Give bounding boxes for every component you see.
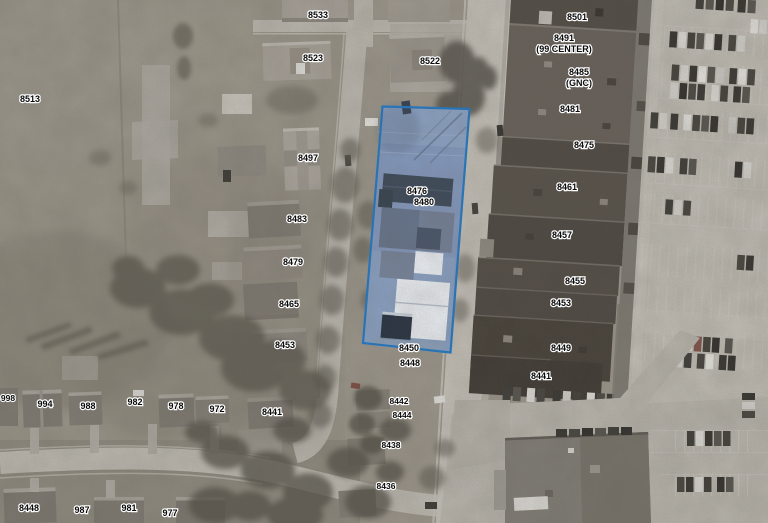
svg-text:8523: 8523 — [303, 53, 323, 63]
svg-text:998: 998 — [1, 393, 15, 403]
svg-text:8449: 8449 — [551, 343, 571, 353]
svg-text:(99 CENTER): (99 CENTER) — [536, 44, 592, 54]
svg-text:978: 978 — [168, 401, 183, 411]
svg-text:8491: 8491 — [554, 33, 574, 43]
svg-text:8441: 8441 — [262, 407, 282, 417]
svg-text:8481: 8481 — [560, 104, 580, 114]
svg-text:8436: 8436 — [377, 481, 396, 491]
svg-text:8453: 8453 — [551, 298, 571, 308]
svg-text:982: 982 — [127, 397, 142, 407]
svg-text:8483: 8483 — [287, 214, 307, 224]
svg-text:994: 994 — [37, 399, 52, 409]
svg-text:8453: 8453 — [275, 340, 295, 350]
svg-text:8465: 8465 — [279, 299, 299, 309]
svg-text:8501: 8501 — [567, 12, 587, 22]
svg-text:8476: 8476 — [407, 186, 427, 196]
svg-text:8480: 8480 — [414, 197, 434, 207]
svg-text:8475: 8475 — [574, 140, 594, 150]
svg-text:987: 987 — [74, 505, 89, 515]
svg-text:972: 972 — [209, 404, 224, 414]
svg-text:8513: 8513 — [20, 94, 40, 104]
svg-text:977: 977 — [162, 508, 177, 518]
svg-text:8450: 8450 — [399, 343, 419, 353]
svg-text:8442: 8442 — [390, 396, 409, 406]
svg-text:8533: 8533 — [308, 10, 328, 20]
svg-text:988: 988 — [80, 401, 95, 411]
svg-text:8441: 8441 — [531, 371, 551, 381]
svg-text:8497: 8497 — [298, 153, 318, 163]
svg-text:8479: 8479 — [283, 257, 303, 267]
svg-text:981: 981 — [121, 503, 136, 513]
svg-text:8457: 8457 — [552, 230, 572, 240]
svg-text:8448: 8448 — [19, 503, 39, 513]
svg-text:8438: 8438 — [382, 440, 401, 450]
svg-text:8455: 8455 — [565, 276, 585, 286]
svg-text:8444: 8444 — [393, 410, 412, 420]
svg-text:8485: 8485 — [569, 67, 589, 77]
svg-text:8522: 8522 — [420, 56, 440, 66]
svg-text:8461: 8461 — [557, 182, 577, 192]
svg-text:(GNC): (GNC) — [566, 78, 592, 88]
svg-text:8448: 8448 — [400, 358, 420, 368]
